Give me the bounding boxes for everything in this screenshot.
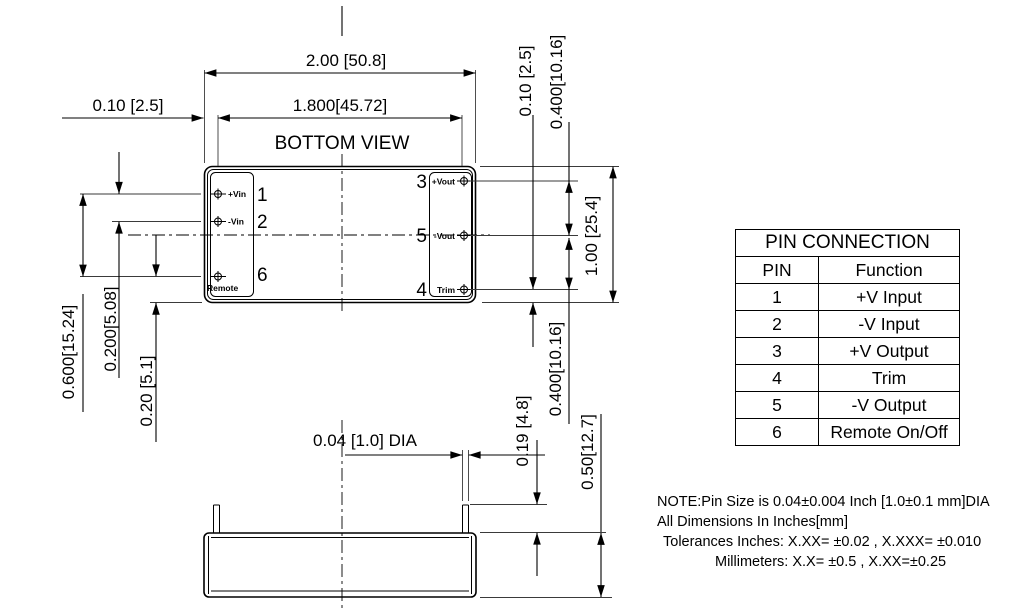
table-title-row: PIN CONNECTION bbox=[736, 230, 960, 257]
pin-1-symbol bbox=[211, 189, 226, 200]
dim-overall-width-label: 2.00 [50.8] bbox=[306, 51, 386, 70]
table-cell-pin: 6 bbox=[736, 419, 819, 446]
table-row: 2 -V Input bbox=[736, 311, 960, 338]
dim-pin5-to-pin4-label: 0.400[10.16] bbox=[546, 322, 565, 417]
dim-pin-diameter-label: 0.04 [1.0] DIA bbox=[313, 431, 418, 450]
notes-block: NOTE:Pin Size is 0.04±0.004 Inch [1.0±0.… bbox=[657, 492, 1028, 572]
pin-1-number: 1 bbox=[257, 185, 268, 206]
table-header-function: Function bbox=[819, 257, 960, 284]
dim-pin1-to-pin6: 0.600[15.24] bbox=[59, 194, 83, 412]
pin-5-symbol bbox=[457, 230, 471, 241]
table-cell-function: -V Output bbox=[819, 392, 960, 419]
dim-case-height-label: 0.50[12.7] bbox=[578, 414, 597, 490]
table-cell-pin: 2 bbox=[736, 311, 819, 338]
view-title: BOTTOM VIEW bbox=[275, 133, 410, 154]
dim-edge-to-pin-top-right: 0.10 [2.5] bbox=[516, 46, 535, 347]
pin-3-number: 3 bbox=[416, 172, 427, 193]
pin-6-label: Remote bbox=[207, 283, 238, 293]
table-cell-pin: 4 bbox=[736, 365, 819, 392]
pin-3-symbol bbox=[457, 176, 471, 187]
pin-2-label: -Vin bbox=[228, 217, 244, 227]
case-outline bbox=[204, 533, 476, 597]
pin-3-label: +Vout bbox=[432, 177, 455, 187]
dim-pin3-to-pin5-label: 0.400[10.16] bbox=[547, 35, 566, 130]
dim-pin5-to-pin4: 0.400[10.16] bbox=[546, 238, 569, 424]
dim-pin-length: 0.19 [4.8] bbox=[513, 396, 537, 576]
pin-1-label: +Vin bbox=[228, 189, 246, 199]
pin-4-symbol bbox=[457, 284, 471, 295]
pin-5-label: -Vout bbox=[434, 231, 455, 241]
dim-overall-width: 2.00 [50.8] bbox=[205, 51, 476, 73]
dim-pin3-to-pin5: 0.400[10.16] bbox=[547, 35, 569, 236]
table-cell-function: -V Input bbox=[819, 311, 960, 338]
dim-overall-height: 1.00 [25.4] bbox=[582, 167, 613, 303]
dim-pin1-to-pin2-label: 0.200[5.08] bbox=[101, 286, 120, 371]
note-tolerances-mm: Millimeters: X.X= ±0.5 , X.XX=±0.25 bbox=[657, 552, 1028, 572]
module-outline-inner bbox=[208, 170, 473, 300]
dim-pin-row-span-label: 1.800[45.72] bbox=[293, 96, 388, 115]
dim-pin-row-span: 1.800[45.72] bbox=[218, 96, 462, 118]
dim-pin-length-label: 0.19 [4.8] bbox=[513, 396, 532, 467]
pin-4-number: 4 bbox=[416, 280, 427, 301]
table-cell-pin: 1 bbox=[736, 284, 819, 311]
pin-6-number: 6 bbox=[257, 265, 268, 286]
note-units: All Dimensions In Inches[mm] bbox=[657, 512, 1028, 532]
pin-5-number: 5 bbox=[416, 226, 427, 247]
table-row: 4 Trim bbox=[736, 365, 960, 392]
table-cell-function: Trim bbox=[819, 365, 960, 392]
table-cell-function: +V Output bbox=[819, 338, 960, 365]
mechanical-drawing-page: +Vin -Vin Remote 1 2 6 +Vout -Vout Trim … bbox=[0, 0, 1028, 612]
dim-overall-height-label: 1.00 [25.4] bbox=[582, 196, 601, 276]
dim-pin1-to-pin2: 0.200[5.08] bbox=[101, 152, 120, 378]
table-row: 1 +V Input bbox=[736, 284, 960, 311]
side-view-left-pin bbox=[214, 505, 220, 533]
table-cell-pin: 5 bbox=[736, 392, 819, 419]
table-row: 5 -V Output bbox=[736, 392, 960, 419]
table-cell-function: Remote On/Off bbox=[819, 419, 960, 446]
table-row: 6 Remote On/Off bbox=[736, 419, 960, 446]
table-header-row: PIN Function bbox=[736, 257, 960, 284]
table-row: 3 +V Output bbox=[736, 338, 960, 365]
dim-edge-to-pin-left-label: 0.10 [2.5] bbox=[93, 96, 164, 115]
table-cell-function: +V Input bbox=[819, 284, 960, 311]
table-title: PIN CONNECTION bbox=[736, 230, 960, 257]
dim-case-height: 0.50[12.7] bbox=[578, 414, 601, 597]
table-cell-pin: 3 bbox=[736, 338, 819, 365]
table-header-pin: PIN bbox=[736, 257, 819, 284]
pin-6-symbol bbox=[211, 271, 226, 282]
pin-2-number: 2 bbox=[257, 212, 268, 233]
pin-2-symbol bbox=[211, 216, 226, 227]
dim-pin1-to-pin6-label: 0.600[15.24] bbox=[59, 305, 78, 400]
dim-pin6-to-bottom-edge-label: 0.20 [5.1] bbox=[137, 356, 156, 427]
note-pin-size: NOTE:Pin Size is 0.04±0.004 Inch [1.0±0.… bbox=[657, 492, 1028, 512]
note-tolerances-inches: Tolerances Inches: X.XX= ±0.02 , X.XXX= … bbox=[657, 532, 1028, 552]
dim-pin6-to-bottom-edge: 0.20 [5.1] bbox=[137, 235, 156, 442]
pin-connection-table: PIN CONNECTION PIN Function 1 +V Input 2… bbox=[735, 229, 960, 446]
pin-4-label: Trim bbox=[437, 285, 455, 295]
dim-pin-diameter: 0.04 [1.0] DIA bbox=[313, 431, 545, 455]
side-view-right-pin bbox=[463, 505, 469, 533]
dim-edge-to-pin-left: 0.10 [2.5] bbox=[62, 96, 204, 118]
dim-edge-to-pin-top-right-label: 0.10 [2.5] bbox=[516, 46, 535, 117]
